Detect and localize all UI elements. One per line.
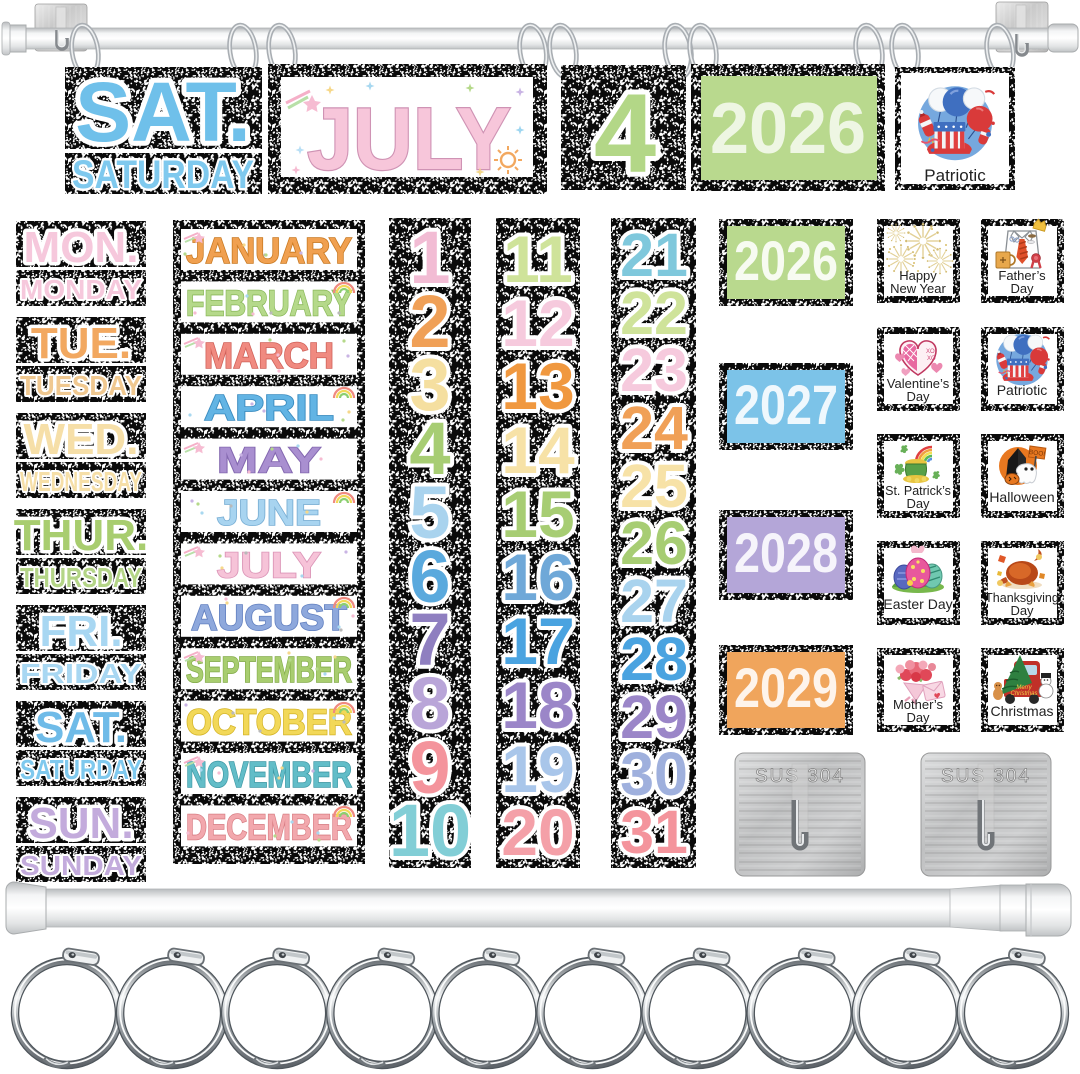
svg-text:WED.: WED. (24, 415, 139, 464)
svg-text:SUNDAY: SUNDAY (20, 850, 142, 881)
svg-text:SUN.: SUN. (28, 799, 133, 848)
svg-text:13: 13 (501, 349, 574, 423)
svg-text:New Year: New Year (890, 281, 946, 296)
svg-text:JULY: JULY (217, 544, 321, 585)
svg-text:11: 11 (503, 222, 573, 296)
svg-text:Day: Day (906, 389, 930, 404)
svg-text:2028: 2028 (734, 521, 838, 584)
svg-text:Christmas: Christmas (990, 703, 1053, 719)
svg-text:AUGUST: AUGUST (191, 597, 347, 638)
svg-text:XO: XO (927, 356, 936, 362)
svg-text:SAT.: SAT. (35, 703, 127, 752)
svg-text:2027: 2027 (734, 373, 838, 436)
svg-text:20: 20 (501, 795, 574, 869)
svg-text:NOVEMBER: NOVEMBER (186, 754, 352, 795)
svg-text:MONDAY: MONDAY (20, 274, 142, 305)
svg-text:SATURDAY: SATURDAY (72, 153, 254, 197)
svg-text:2026: 2026 (734, 229, 838, 292)
svg-text:Day: Day (906, 710, 930, 725)
svg-text:TUESDAY: TUESDAY (20, 370, 142, 401)
svg-text:WEDNESDAY: WEDNESDAY (20, 466, 142, 497)
svg-text:OCTOBER: OCTOBER (186, 702, 352, 743)
svg-text:FRIDAY: FRIDAY (20, 658, 142, 689)
svg-text:Christmas: Christmas (1010, 691, 1037, 697)
svg-text:14: 14 (501, 413, 575, 487)
svg-text:TUE.: TUE. (31, 319, 131, 368)
svg-text:SEPTEMBER: SEPTEMBER (186, 649, 352, 690)
svg-text:2029: 2029 (734, 656, 838, 719)
svg-text:JANUARY: JANUARY (186, 230, 352, 271)
svg-text:SATURDAY: SATURDAY (20, 754, 142, 785)
svg-text:31: 31 (620, 798, 688, 866)
svg-text:FEBRUARY: FEBRUARY (186, 282, 352, 323)
svg-text:THUR.: THUR. (14, 511, 148, 560)
svg-text:APRIL: APRIL (204, 387, 334, 428)
svg-text:Day: Day (1010, 281, 1034, 296)
svg-text:17: 17 (501, 604, 574, 678)
svg-text:Day: Day (1010, 603, 1034, 618)
svg-text:MON.: MON. (24, 223, 139, 272)
svg-text:DECEMBER: DECEMBER (186, 806, 352, 847)
svg-text:18: 18 (501, 668, 574, 742)
svg-text:10: 10 (389, 789, 471, 872)
svg-text:MAY: MAY (217, 440, 321, 481)
svg-text:THURSDAY: THURSDAY (20, 562, 142, 593)
svg-text:XO: XO (926, 349, 935, 355)
svg-text:FRI.: FRI. (39, 607, 122, 656)
svg-text:Patriotic: Patriotic (924, 166, 986, 185)
svg-text:Patriotic: Patriotic (997, 382, 1048, 398)
svg-text:JUNE: JUNE (217, 492, 321, 533)
svg-text:16: 16 (501, 540, 574, 614)
svg-text:Halloween: Halloween (989, 489, 1054, 505)
svg-text:Easter Day: Easter Day (883, 596, 952, 612)
svg-text:4: 4 (594, 71, 656, 196)
svg-text:2026: 2026 (710, 89, 866, 169)
svg-text:Day: Day (906, 496, 930, 511)
svg-text:SAT.: SAT. (75, 65, 251, 159)
